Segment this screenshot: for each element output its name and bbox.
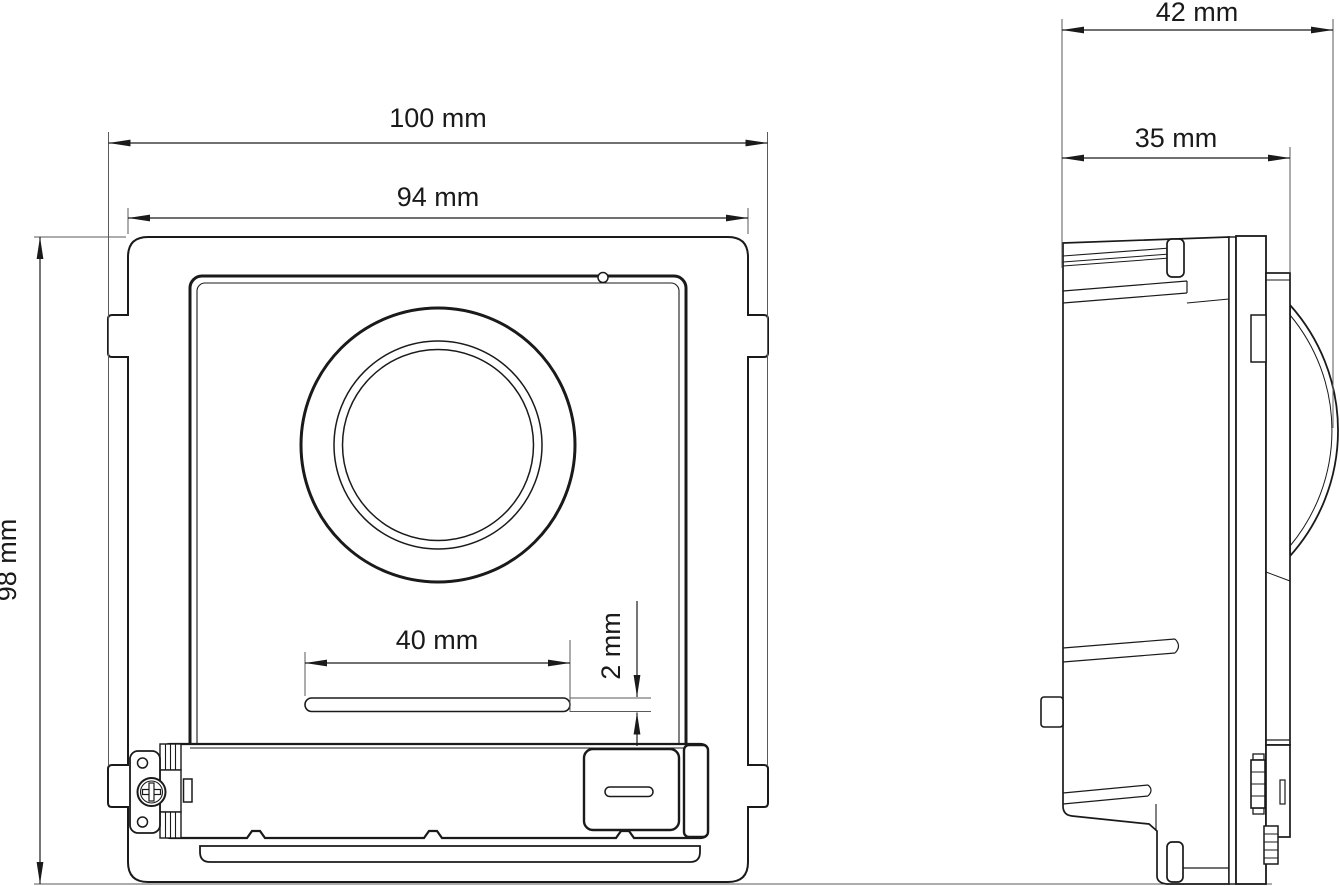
button-slot-side <box>1280 780 1285 804</box>
dim-label-42mm: 42 mm <box>1156 0 1239 27</box>
dimension-body-width: 94 mm <box>128 182 748 234</box>
name-tag-slot <box>605 787 653 797</box>
button-side-plate <box>684 745 708 837</box>
screw-cross-v <box>149 783 154 801</box>
pin-hole <box>598 273 608 283</box>
dimension-drawing: 100 mm 94 mm 98 mm 40 mm 2 mm <box>0 0 1340 886</box>
hinge-latch <box>184 779 193 802</box>
rear-housing <box>1063 237 1229 884</box>
plate-gap <box>1229 237 1236 884</box>
side-tab <box>1041 697 1063 727</box>
dim-label-100mm: 100 mm <box>389 103 487 133</box>
dim-label-94mm: 94 mm <box>397 182 480 212</box>
call-button-assembly <box>584 745 708 837</box>
lens-dome <box>1290 305 1338 556</box>
module-face-outer <box>190 276 686 796</box>
plate-boss <box>1251 315 1266 362</box>
dim-label-35mm: 35 mm <box>1135 123 1218 153</box>
bracket-hole-top <box>138 758 148 768</box>
bottom-lip <box>200 846 700 862</box>
dim-label-98mm: 98 mm <box>0 519 22 602</box>
top-rail-clip <box>1167 239 1184 277</box>
strip-profile-side <box>1266 745 1290 837</box>
bracket-flange-top <box>1253 754 1264 760</box>
side-view: 42 mm 35 mm <box>1041 0 1338 884</box>
dim-label-40mm: 40 mm <box>396 625 479 655</box>
dim-label-2mm: 2 mm <box>596 612 626 680</box>
bottom-rail-clip <box>1167 842 1183 882</box>
phillips-screw <box>138 778 166 806</box>
face-plate-side <box>1266 273 1290 745</box>
technical-drawing-page: 100 mm 94 mm 98 mm 40 mm 2 mm <box>0 0 1340 886</box>
dome-profile <box>1290 305 1338 556</box>
bracket-flange-bottom <box>1253 808 1264 814</box>
bracket-hole-bottom <box>138 817 148 827</box>
module-face <box>190 273 686 797</box>
mic-slot <box>305 698 570 712</box>
